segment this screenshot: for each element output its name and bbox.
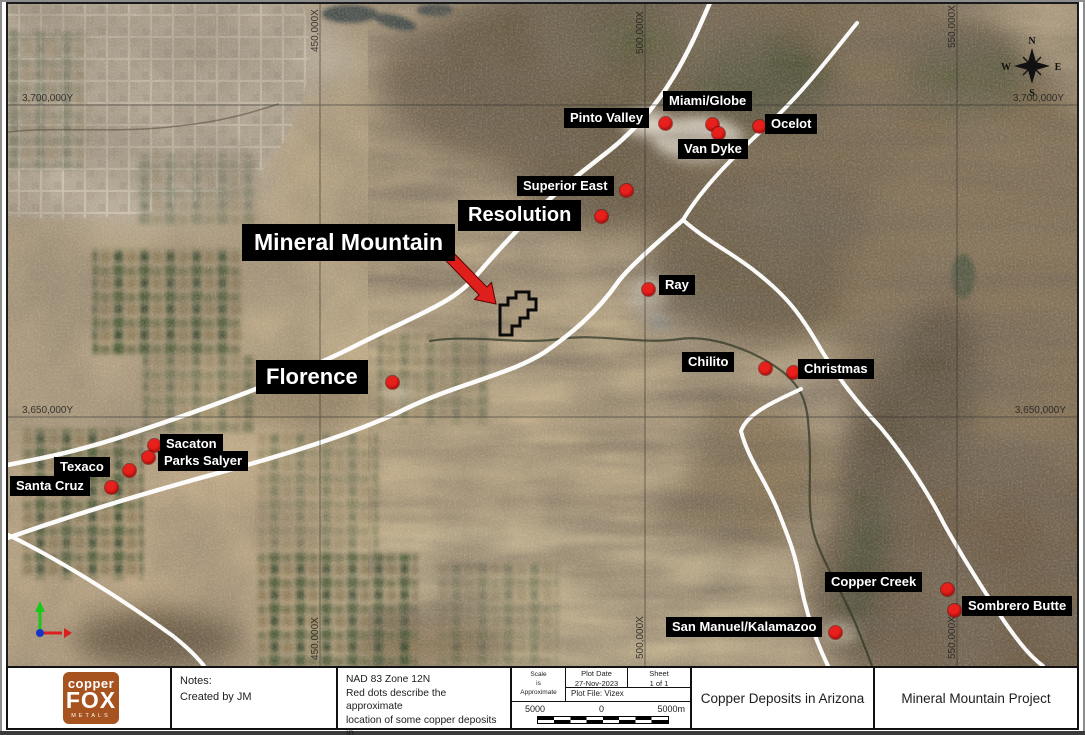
logo-line3: METALS	[71, 714, 111, 720]
copper-fox-logo: copper FOX METALS	[63, 672, 119, 724]
deposit-dot-parks-salyer	[142, 451, 155, 464]
deposit-label-sombrero-butte: Sombrero Butte	[962, 596, 1072, 616]
deposit-dot-ray	[642, 283, 655, 296]
deposit-label-superior-east: Superior East	[517, 176, 614, 196]
deposit-dot-pinto-valley	[659, 117, 672, 130]
projection-line3: location of some copper deposits in	[346, 714, 502, 735]
grid-label-x1-bottom: 450,000X	[310, 617, 321, 660]
grid-label-y1-right: 3,700,000Y	[1013, 93, 1064, 104]
grid-label-x2-bottom: 500,000X	[635, 616, 646, 659]
deposit-dot-florence	[386, 376, 399, 389]
deposit-dot-santa-cruz	[105, 481, 118, 494]
deposit-label-parks-salyer: Parks Salyer	[158, 451, 248, 471]
title-block: copper FOX METALS Notes: Created by JM N…	[6, 666, 1079, 730]
grid-label-y2-left: 3,650,000Y	[22, 405, 73, 416]
deposit-label-copper-creek: Copper Creek	[825, 572, 922, 592]
deposit-dot-san-manuel	[829, 626, 842, 639]
compass-w: W	[1001, 62, 1011, 73]
plot-file: Plot File: Vizex	[566, 688, 690, 701]
logo-line2: FOX	[66, 689, 116, 712]
scale-cell: Scale is Approximate Plot Date 27-Nov-20…	[512, 668, 692, 728]
deposit-label-santa-cruz: Santa Cruz	[10, 476, 90, 496]
deposit-label-van-dyke: Van Dyke	[678, 139, 748, 159]
map-title: Copper Deposits in Arizona	[692, 668, 875, 728]
deposit-dot-copper-creek	[941, 583, 954, 596]
map-area: 3,700,000Y 3,700,000Y 3,650,000Y 3,650,0…	[8, 4, 1077, 666]
deposit-label-mineral-mountain: Mineral Mountain	[242, 224, 455, 261]
deposit-dot-resolution	[595, 210, 608, 223]
scale-bar: 5000 0 5000m	[512, 702, 690, 728]
scale-bar-zero: 0	[599, 704, 604, 714]
grid-label-y1-left: 3,700,000Y	[22, 93, 73, 104]
compass-e: E	[1055, 62, 1062, 73]
deposit-dot-chilito	[759, 362, 772, 375]
logo-cell: copper FOX METALS	[8, 668, 172, 728]
notes-body: Created by JM	[180, 690, 328, 706]
deposit-label-texaco: Texaco	[54, 457, 110, 477]
deposit-dot-sombrero-butte	[948, 604, 961, 617]
plot-sheet: 3,700,000Y 3,700,000Y 3,650,000Y 3,650,0…	[0, 0, 1085, 735]
deposit-label-ocelot: Ocelot	[765, 114, 817, 134]
scale-bar-graphic	[537, 716, 669, 724]
project-name: Mineral Mountain Project	[875, 668, 1077, 728]
sheet-number: Sheet 1 of 1	[628, 668, 690, 687]
plot-date: Plot Date 27-Nov-2023	[566, 668, 628, 687]
deposit-label-chilito: Chilito	[682, 352, 734, 372]
projection-cell: NAD 83 Zone 12N Red dots describe the ap…	[338, 668, 512, 728]
scale-bar-right-value: 5000m	[657, 704, 685, 714]
notes-title: Notes:	[180, 674, 328, 690]
deposit-label-ray: Ray	[659, 275, 695, 295]
deposit-label-san-manuel: San Manuel/Kalamazoo	[666, 617, 822, 637]
grid-label-x3-bottom: 550,000X	[947, 616, 958, 659]
scale-note: Scale is Approximate	[512, 668, 566, 701]
compass-n: N	[1028, 36, 1036, 47]
deposit-dot-superior-east	[620, 184, 633, 197]
grid-label-y2-right: 3,650,000Y	[1015, 405, 1066, 416]
deposit-label-resolution: Resolution	[458, 200, 581, 231]
deposit-label-pinto-valley: Pinto Valley	[564, 108, 649, 128]
grid-label-x2-top: 500,000X	[635, 11, 646, 54]
grid-label-x1-top: 450,000X	[310, 9, 321, 52]
notes-cell: Notes: Created by JM	[172, 668, 338, 728]
scale-bar-left-value: 5000	[525, 704, 545, 714]
grain-noise	[8, 4, 1077, 666]
deposit-label-florence: Florence	[256, 360, 368, 394]
projection-line2: Red dots describe the approximate	[346, 687, 502, 714]
compass-s: S	[1029, 88, 1035, 99]
deposit-dot-texaco	[123, 464, 136, 477]
deposit-label-christmas: Christmas	[798, 359, 874, 379]
map-canvas: 3,700,000Y 3,700,000Y 3,650,000Y 3,650,0…	[8, 4, 1077, 666]
deposit-label-miami-globe: Miami/Globe	[663, 91, 752, 111]
projection-line1: NAD 83 Zone 12N	[346, 673, 502, 687]
grid-label-x3-top: 550,000X	[947, 5, 958, 48]
